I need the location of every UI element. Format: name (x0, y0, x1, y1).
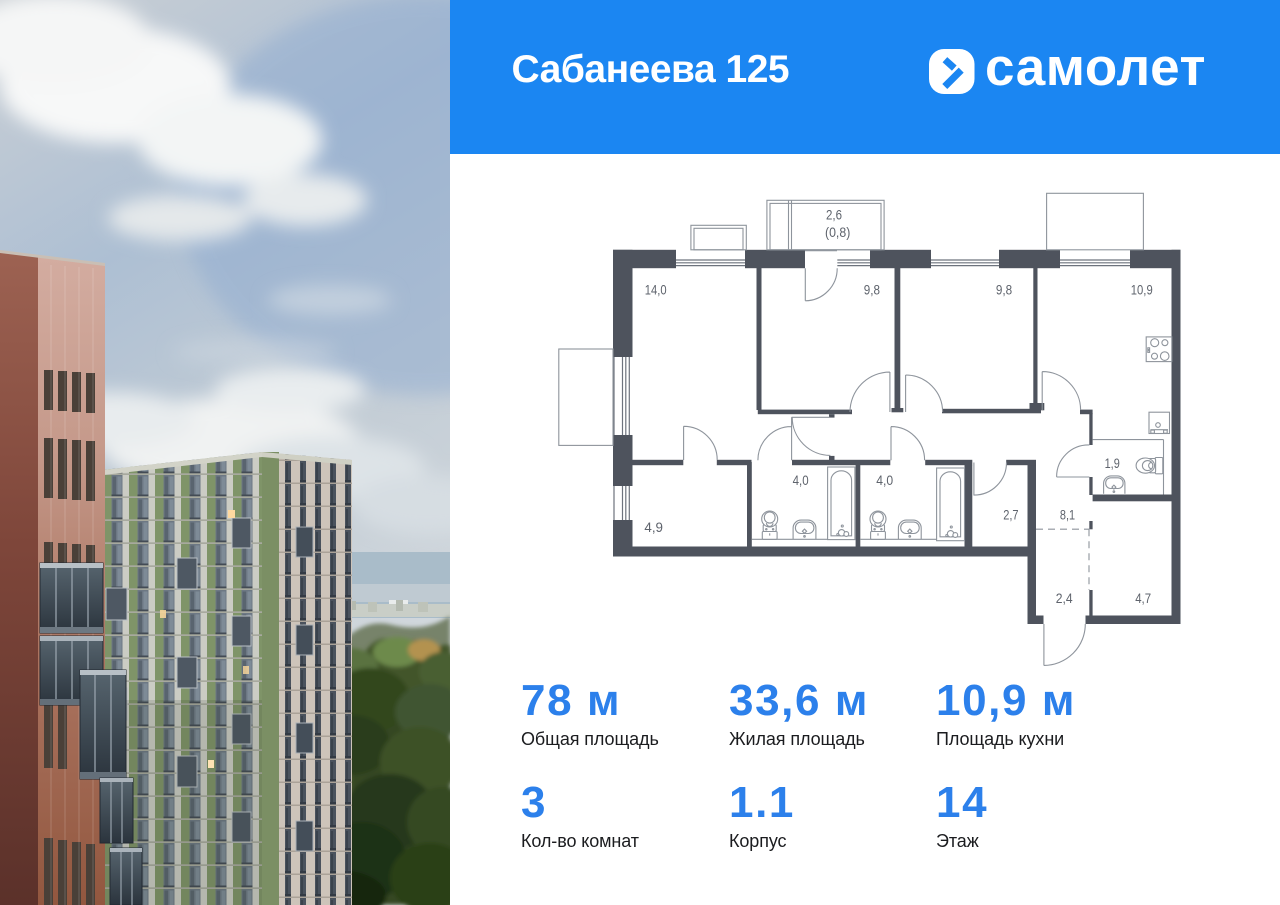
svg-text:4,0: 4,0 (793, 472, 809, 488)
svg-text:4,7: 4,7 (1135, 590, 1151, 606)
svg-text:(0,8): (0,8) (825, 224, 850, 240)
svg-text:2,7: 2,7 (1003, 506, 1019, 522)
svg-text:2,4: 2,4 (1056, 590, 1073, 606)
svg-text:4,9: 4,9 (644, 519, 663, 535)
svg-text:1,9: 1,9 (1105, 455, 1120, 471)
svg-text:2,6: 2,6 (826, 206, 842, 222)
svg-text:9,8: 9,8 (996, 282, 1012, 298)
svg-text:9,8: 9,8 (864, 282, 880, 298)
svg-text:14,0: 14,0 (645, 282, 667, 298)
svg-text:4,0: 4,0 (876, 472, 893, 488)
svg-text:8,1: 8,1 (1060, 506, 1075, 522)
svg-text:10,9: 10,9 (1131, 282, 1153, 298)
